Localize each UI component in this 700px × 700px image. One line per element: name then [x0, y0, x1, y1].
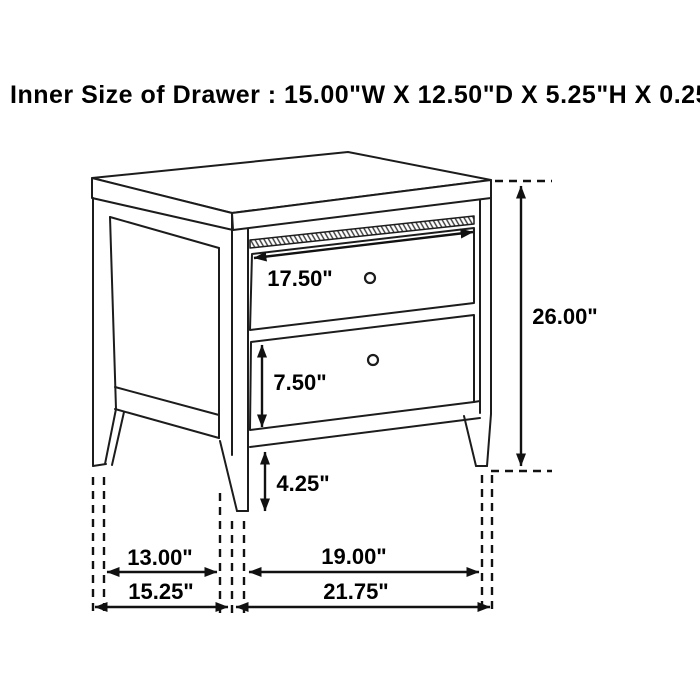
right-leg-inner-edge	[464, 416, 476, 466]
dim-label-top-drawer-width: 17.50"	[267, 266, 332, 292]
drawer-1-knob	[365, 273, 375, 283]
left-leg-bottom-edge	[93, 464, 106, 466]
drawer-2-knob	[368, 355, 378, 365]
side-stile-inner-edge	[110, 217, 116, 409]
right-post-outer-edge	[487, 198, 491, 466]
front-leg-taper-edge	[220, 441, 237, 511]
dim-label-side-inner-width: 13.00"	[127, 545, 192, 571]
dim-label-front-inner-width: 19.00"	[321, 544, 386, 570]
dim-label-bottom-drawer-height: 7.50"	[273, 370, 326, 396]
dim-label-side-overall-width: 15.25"	[128, 579, 193, 605]
dim-label-overall-height: 26.00"	[532, 304, 597, 330]
dim-label-front-overall-width: 21.75"	[323, 579, 388, 605]
side-bottom-rail-top-edge	[115, 387, 219, 415]
nightstand-outline	[92, 152, 491, 511]
dim-label-base-clearance: 4.25"	[276, 471, 329, 497]
side-bottom-rail-bottom-edge	[115, 409, 219, 438]
